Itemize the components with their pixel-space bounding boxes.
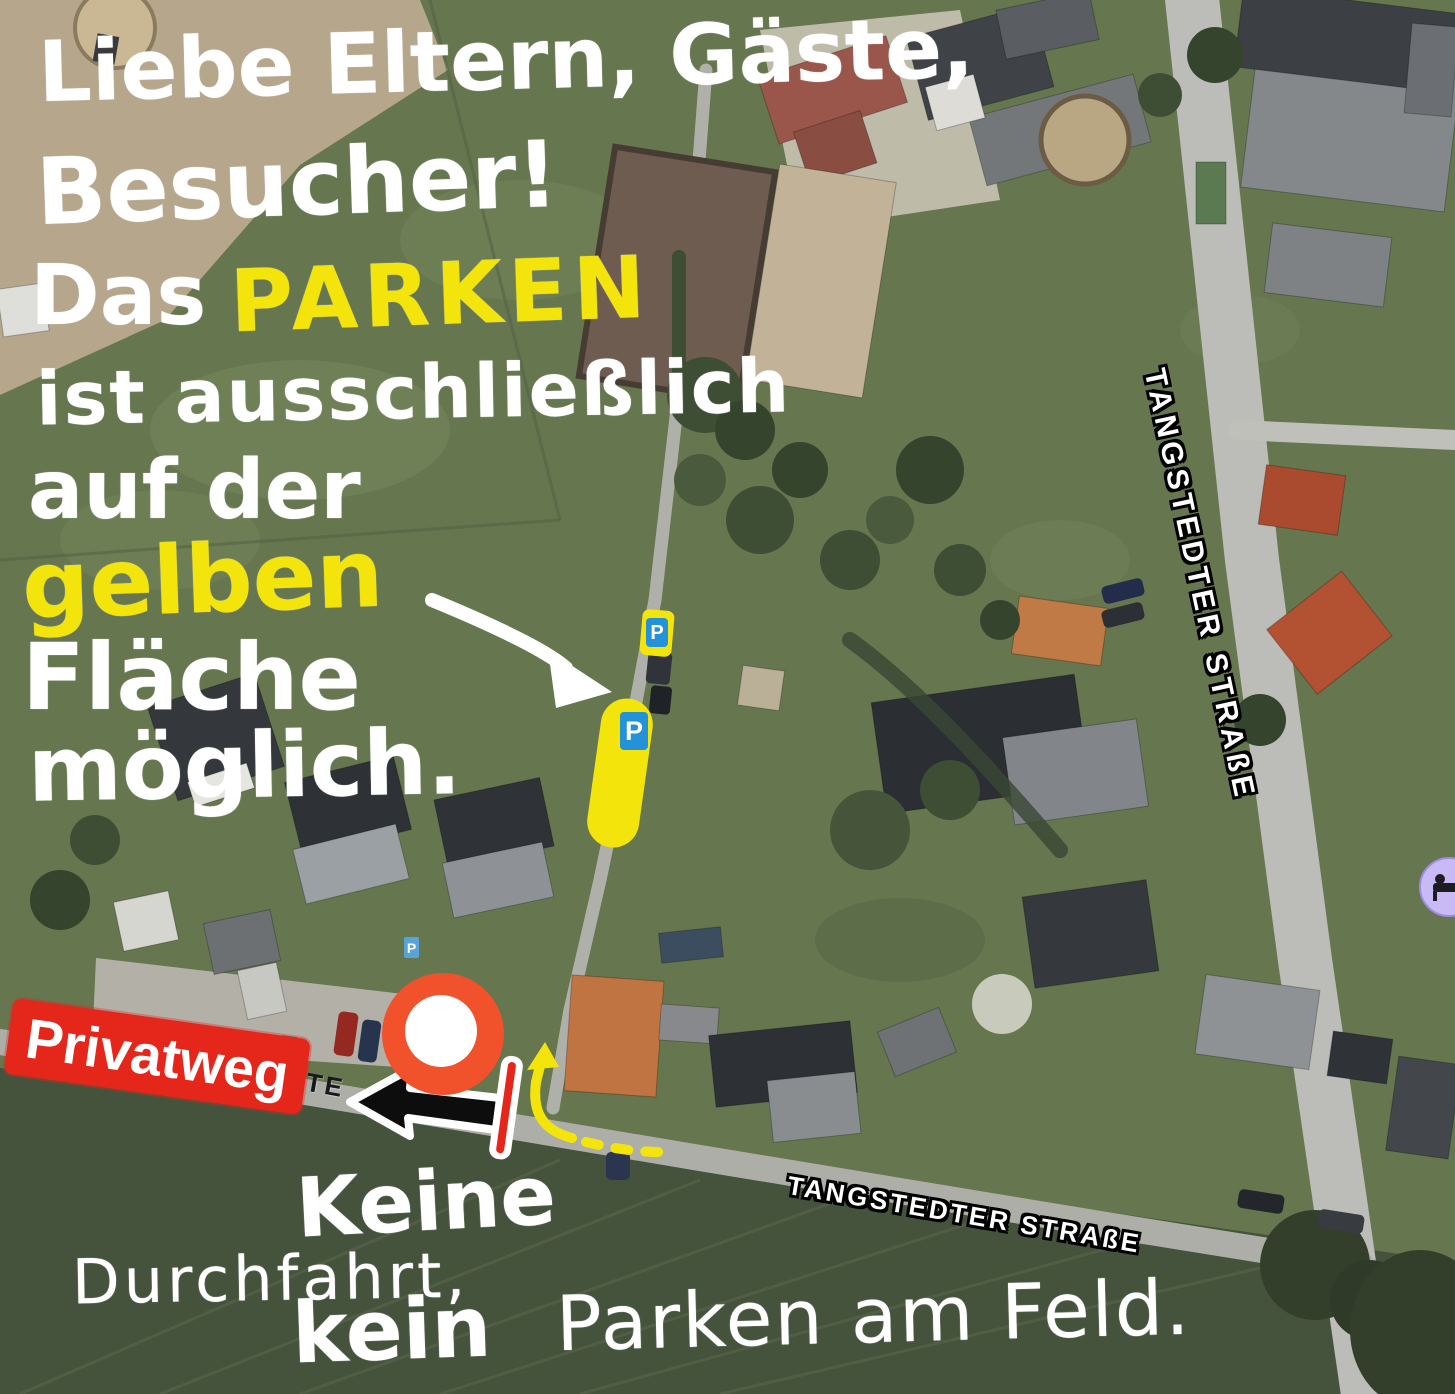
notice-line-4: ist ausschließlich	[35, 349, 791, 436]
parken-highlight: PARKEN	[228, 245, 652, 346]
annotated-aerial-map: P P P Liebe Eltern, Gäste, Besucher! Das…	[0, 0, 1455, 1394]
no-entry-marker	[382, 973, 504, 1095]
garden-beds	[737, 665, 784, 710]
notice-line-1: Liebe Eltern, Gäste,	[37, 6, 975, 114]
parking-sign: P	[646, 618, 668, 647]
parken-am-feld-text: Parken am Feld.	[555, 1270, 1192, 1363]
green-shed	[1196, 162, 1226, 224]
parking-sign-letter: P	[407, 941, 416, 955]
notice-line-3: Das PARKEN	[30, 252, 651, 338]
round-pen	[1041, 96, 1129, 184]
street-label-partial: TE	[304, 1069, 347, 1101]
parking-sign-letter: P	[625, 718, 643, 745]
notice-line-2: Besucher!	[35, 129, 560, 239]
notice-line-6: gelben	[20, 528, 384, 635]
notice-line-8: möglich.	[27, 718, 462, 816]
parking-sign: P	[404, 937, 419, 958]
notice-line-5: auf der	[28, 450, 361, 532]
keine-text: Keine	[294, 1155, 558, 1250]
magnolia-tree	[972, 974, 1032, 1034]
notice-das: Das	[30, 246, 206, 344]
parking-sign-letter: P	[650, 623, 663, 643]
parking-sign: P	[620, 712, 648, 750]
kein-text: kein	[291, 1285, 493, 1376]
side-street	[1238, 430, 1455, 440]
notice-line-7: Fläche	[22, 632, 361, 724]
